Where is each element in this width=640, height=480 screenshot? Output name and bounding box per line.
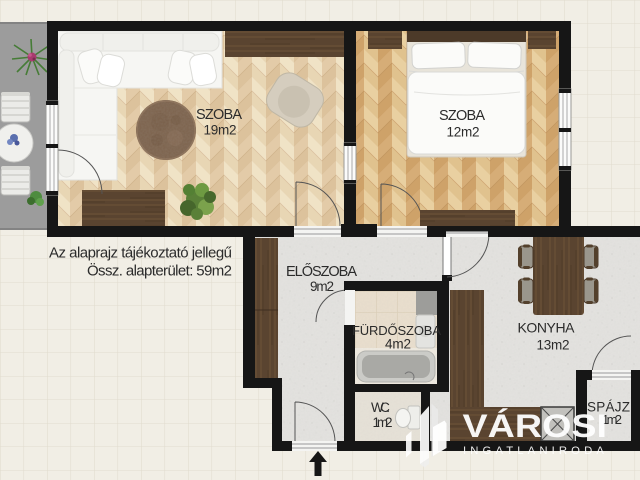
svg-text:12m2: 12m2 <box>447 125 480 140</box>
svg-text:4m2: 4m2 <box>385 337 411 352</box>
svg-text:ELŐSZOBA: ELŐSZOBA <box>286 263 357 280</box>
svg-text:19m2: 19m2 <box>204 123 237 138</box>
svg-text:SZOBA: SZOBA <box>196 107 242 123</box>
svg-text:WC.: WC. <box>371 400 390 415</box>
svg-text:1m2: 1m2 <box>373 415 393 430</box>
svg-text:KONYHA: KONYHA <box>518 320 576 336</box>
svg-text:Össz. alapterület: 59m2: Össz. alapterület: 59m2 <box>87 262 232 280</box>
svg-text:SZOBA: SZOBA <box>439 108 485 124</box>
svg-text:INGATLANIRODA: INGATLANIRODA <box>463 445 608 457</box>
svg-text:13m2: 13m2 <box>537 338 570 353</box>
svg-text:Az alaprajz tájékoztató jelleg: Az alaprajz tájékoztató jellegű <box>49 245 232 262</box>
svg-text:9m2: 9m2 <box>310 279 334 294</box>
svg-text:VÁROSI: VÁROSI <box>463 407 608 444</box>
